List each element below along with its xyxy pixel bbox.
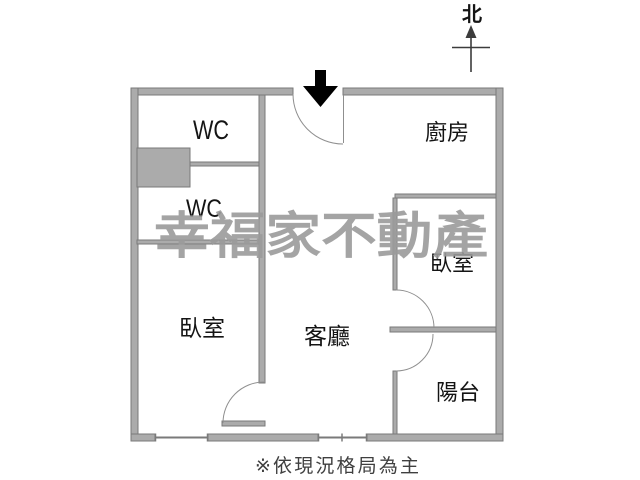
north-label: 北: [462, 3, 482, 26]
door-arc-bedroom-left: [223, 382, 264, 423]
fixture-box: [137, 148, 190, 187]
entrance-arrow-icon: [303, 70, 338, 107]
caption: ※依現況格局為主: [255, 455, 419, 477]
wall-bottom-segment-1: [131, 434, 155, 441]
door-arc-bedroom-right: [396, 290, 434, 328]
wall-top-left: [131, 88, 293, 95]
wall-left: [131, 88, 138, 441]
watermark: 幸福家不動產: [154, 208, 488, 264]
north-compass: 北: [452, 3, 490, 72]
door-arc-balcony: [396, 334, 433, 371]
room-label-living-room: 客廳: [304, 323, 350, 349]
wall-right: [496, 88, 503, 441]
room-label-balcony: 陽台: [436, 380, 480, 405]
wall-kitchen-bottom: [395, 194, 496, 198]
floor-plan-page: 北 WC WC 廚房 臥室 臥室 客廳 陽台 幸福家不動產 ※依現況格局為主: [0, 0, 640, 480]
room-label-bedroom-left: 臥室: [179, 315, 225, 341]
wall-bedroom-balcony-divider: [390, 327, 496, 332]
room-label-kitchen: 廚房: [425, 120, 469, 145]
wall-bottom-segment-3: [367, 434, 503, 441]
wall-top-right: [343, 88, 503, 95]
wall-balcony-left: [393, 371, 397, 434]
wall-wc-divider: [190, 162, 262, 166]
room-label-wc-top: WC: [193, 115, 229, 145]
compass-arrowhead-icon: [466, 25, 477, 38]
door-leaf-bedroom-left: [222, 421, 265, 426]
wall-bottom-segment-2: [208, 434, 318, 441]
floor-plan: 北 WC WC 廚房 臥室 臥室 客廳 陽台 幸福家不動產 ※依現況格局為主: [0, 0, 640, 480]
